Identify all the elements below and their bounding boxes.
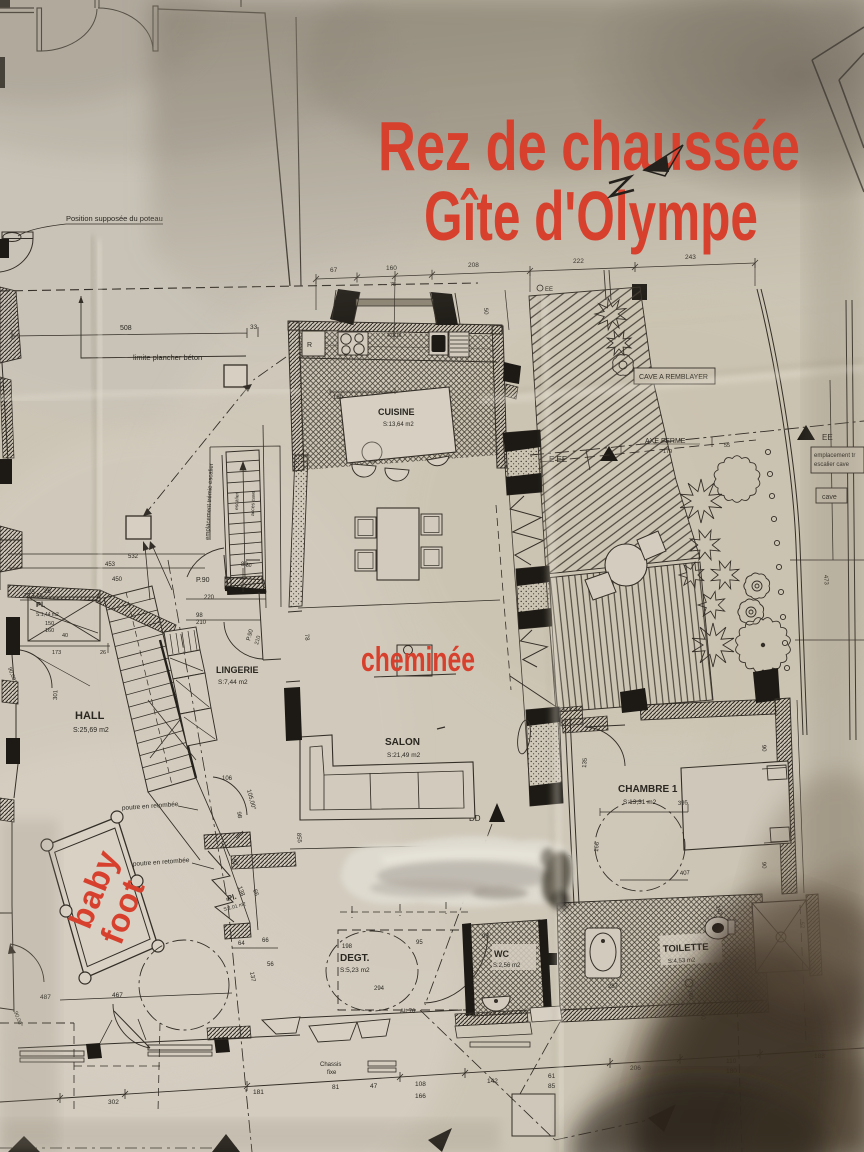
svg-text:179: 179 xyxy=(663,449,672,455)
svg-text:26: 26 xyxy=(44,589,51,595)
svg-text:S:13,64 m2: S:13,64 m2 xyxy=(383,422,414,428)
svg-text:cheminée: cheminée xyxy=(361,641,475,679)
svg-text:S:7,44 m2: S:7,44 m2 xyxy=(218,679,248,686)
svg-text:453: 453 xyxy=(105,562,116,568)
svg-text:80: 80 xyxy=(241,562,248,568)
svg-text:135: 135 xyxy=(582,757,589,768)
svg-text:DEGT.: DEGT. xyxy=(340,953,370,964)
svg-text:CHAMBRE 1: CHAMBRE 1 xyxy=(618,784,678,795)
svg-text:78: 78 xyxy=(303,634,310,642)
svg-text:61: 61 xyxy=(548,1073,556,1080)
svg-text:508: 508 xyxy=(120,325,132,332)
svg-text:S:2,56 m2: S:2,56 m2 xyxy=(493,963,521,969)
svg-text:106: 106 xyxy=(222,776,233,782)
svg-text:S:13,31 m2: S:13,31 m2 xyxy=(623,799,657,806)
svg-text:HALL: HALL xyxy=(75,710,105,722)
svg-text:81: 81 xyxy=(332,1084,340,1091)
svg-text:173: 173 xyxy=(52,650,61,656)
svg-text:181: 181 xyxy=(253,1089,264,1096)
svg-text:40: 40 xyxy=(62,633,68,639)
svg-text:Chassis: Chassis xyxy=(320,1062,341,1068)
svg-text:Pl.: Pl. xyxy=(36,600,45,609)
svg-text:287: 287 xyxy=(608,983,619,990)
svg-text:WC: WC xyxy=(494,949,509,959)
svg-text:166: 166 xyxy=(415,1093,426,1100)
svg-text:55: 55 xyxy=(724,443,730,449)
svg-text:47: 47 xyxy=(370,1083,378,1090)
svg-text:acces cave: acces cave xyxy=(250,491,257,516)
svg-text:294: 294 xyxy=(374,986,385,992)
svg-text:450: 450 xyxy=(112,577,123,583)
svg-text:S:5,23 m2: S:5,23 m2 xyxy=(340,967,370,974)
svg-text:26: 26 xyxy=(100,650,106,656)
svg-text:407: 407 xyxy=(680,870,691,877)
svg-text:S:25,69 m2: S:25,69 m2 xyxy=(73,727,109,734)
svg-text:Position supposée du poteau: Position supposée du poteau xyxy=(66,214,163,223)
svg-text:467: 467 xyxy=(112,992,123,999)
svg-text:escalier: escalier xyxy=(234,492,241,510)
svg-text:198: 198 xyxy=(342,944,353,950)
svg-text:150: 150 xyxy=(45,621,54,627)
svg-text:25 + 26: 25 + 26 xyxy=(24,593,43,599)
svg-text:210: 210 xyxy=(196,620,207,626)
svg-text:160: 160 xyxy=(333,395,344,401)
svg-text:160: 160 xyxy=(45,628,54,634)
svg-text:Rez de chaussée: Rez de chaussée xyxy=(378,107,800,185)
svg-text:LINGERIE: LINGERIE xyxy=(216,665,259,675)
svg-text:64: 64 xyxy=(238,941,245,947)
svg-text:220: 220 xyxy=(204,595,215,601)
svg-text:302: 302 xyxy=(108,1099,119,1106)
svg-text:CUISINE: CUISINE xyxy=(378,407,415,417)
svg-text:855: 855 xyxy=(295,833,302,844)
svg-text:532: 532 xyxy=(128,554,139,560)
svg-text:108: 108 xyxy=(415,1081,426,1088)
svg-text:P.90: P.90 xyxy=(196,577,210,584)
svg-text:66: 66 xyxy=(262,938,269,944)
svg-text:limite plancher béton: limite plancher béton xyxy=(133,353,202,362)
svg-text:56: 56 xyxy=(267,962,274,968)
svg-text:301: 301 xyxy=(53,689,59,700)
svg-text:S:21,49 m2: S:21,49 m2 xyxy=(387,752,421,759)
svg-text:95: 95 xyxy=(416,940,423,946)
svg-text:Gîte d'Olympe: Gîte d'Olympe xyxy=(424,177,758,255)
svg-text:166: 166 xyxy=(594,841,601,852)
svg-text:98: 98 xyxy=(196,613,203,619)
svg-text:90: 90 xyxy=(760,745,767,753)
svg-text:fixe: fixe xyxy=(327,1070,337,1076)
svg-text:SALON: SALON xyxy=(385,737,420,748)
svg-text:395: 395 xyxy=(678,800,689,807)
svg-text:85: 85 xyxy=(548,1083,556,1090)
